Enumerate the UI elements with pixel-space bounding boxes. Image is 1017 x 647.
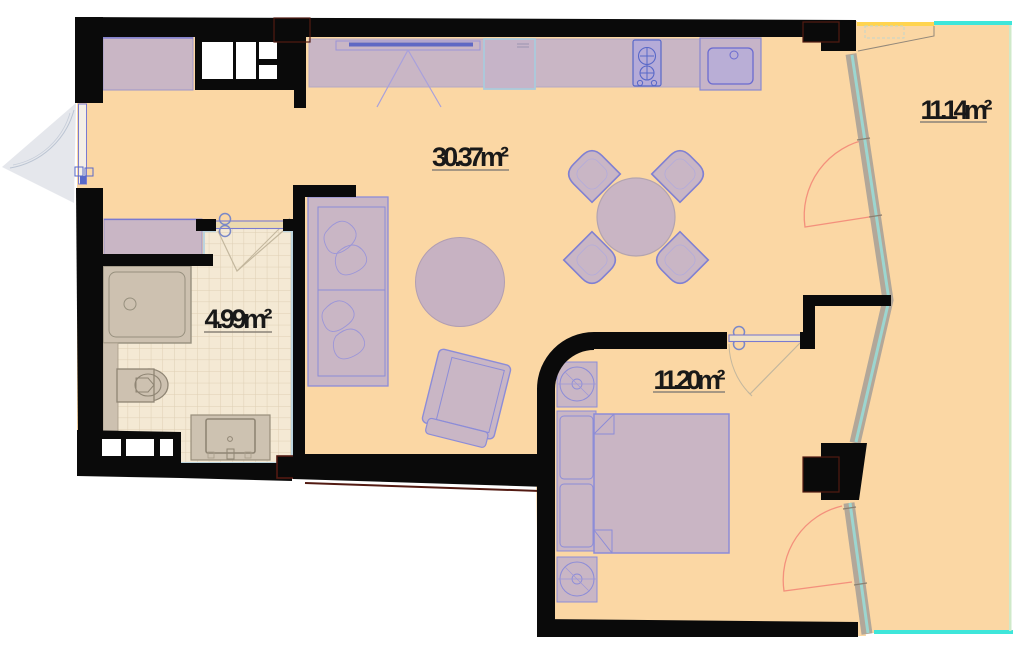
svg-text:11.14m²: 11.14m² xyxy=(921,95,993,125)
svg-text:11.20m²: 11.20m² xyxy=(654,365,726,395)
svg-text:30.37m²: 30.37m² xyxy=(432,142,509,172)
svg-text:4.99m²: 4.99m² xyxy=(205,304,273,334)
